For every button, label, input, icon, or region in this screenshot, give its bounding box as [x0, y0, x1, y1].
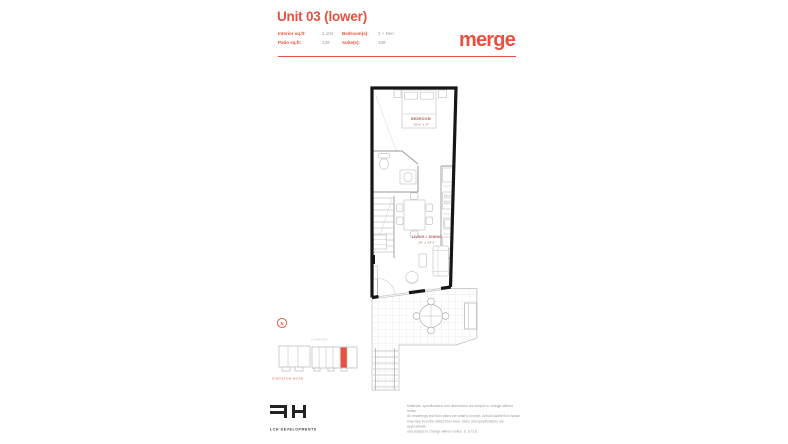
living-dim: 16' x 24'3": [418, 241, 435, 245]
unit-floorplan: BEDROOM 10'6" x 9' LIVING / DINING 16' x…: [360, 80, 490, 405]
spec-label: Bedroom(s):: [342, 31, 378, 36]
patio: [372, 289, 477, 391]
spec-interior: Interior sq.ft: 1,104: [278, 31, 342, 36]
patio-planter: [465, 303, 477, 329]
spec-patio: Patio sq.ft: 139: [278, 40, 342, 45]
spec-suites: Suite(s): 108: [342, 40, 386, 45]
keyplan-street-top: LANEWAY: [311, 338, 329, 342]
spec-value: 108: [378, 40, 386, 45]
page-title: Unit 03 (lower): [277, 9, 367, 24]
spec-bedrooms: Bedroom(s): 2 + Den: [342, 31, 394, 36]
lch-logo-icon: [270, 403, 310, 421]
keyplan-street-bottom: KINGSTON ROAD: [272, 377, 304, 381]
bedroom-dim: 10'6" x 9': [413, 123, 429, 127]
merge-logo: merge: [459, 29, 515, 52]
compass-icon: N: [277, 318, 286, 327]
developer-logo: LCH DEVELOPMENTS: [270, 403, 363, 435]
spec-value: 139: [322, 40, 330, 45]
compass-letter: N: [280, 321, 283, 326]
header-divider: [278, 56, 516, 57]
keyplan: N LANEWAY KINGSTON ROAD: [265, 312, 365, 387]
disclaimer-line: may vary from the stated floor area. Siz…: [407, 419, 523, 429]
bedroom-label: BEDROOM: [411, 117, 431, 121]
spec-label: Suite(s):: [342, 40, 378, 45]
spec-value: 2 + Den: [378, 31, 394, 36]
keyplan-unit-highlight: [341, 348, 347, 368]
floorplan-sheet: Unit 03 (lower) Interior sq.ft: 1,104 Be…: [0, 0, 788, 444]
spec-value: 1,104: [322, 31, 333, 36]
developer-name: LCH DEVELOPMENTS: [270, 428, 317, 432]
spec-label: Interior sq.ft:: [278, 31, 322, 36]
spec-label: Patio sq.ft:: [278, 40, 322, 45]
keyplan-building: [279, 346, 357, 371]
disclaimer-line: Materials, specifications and dimensions…: [407, 404, 523, 414]
living-label: LIVING / DINING: [412, 235, 443, 239]
disclaimer: Materials, specifications and dimensions…: [407, 404, 523, 435]
disclaimer-line: and subject to change without notice. E.…: [407, 429, 523, 434]
